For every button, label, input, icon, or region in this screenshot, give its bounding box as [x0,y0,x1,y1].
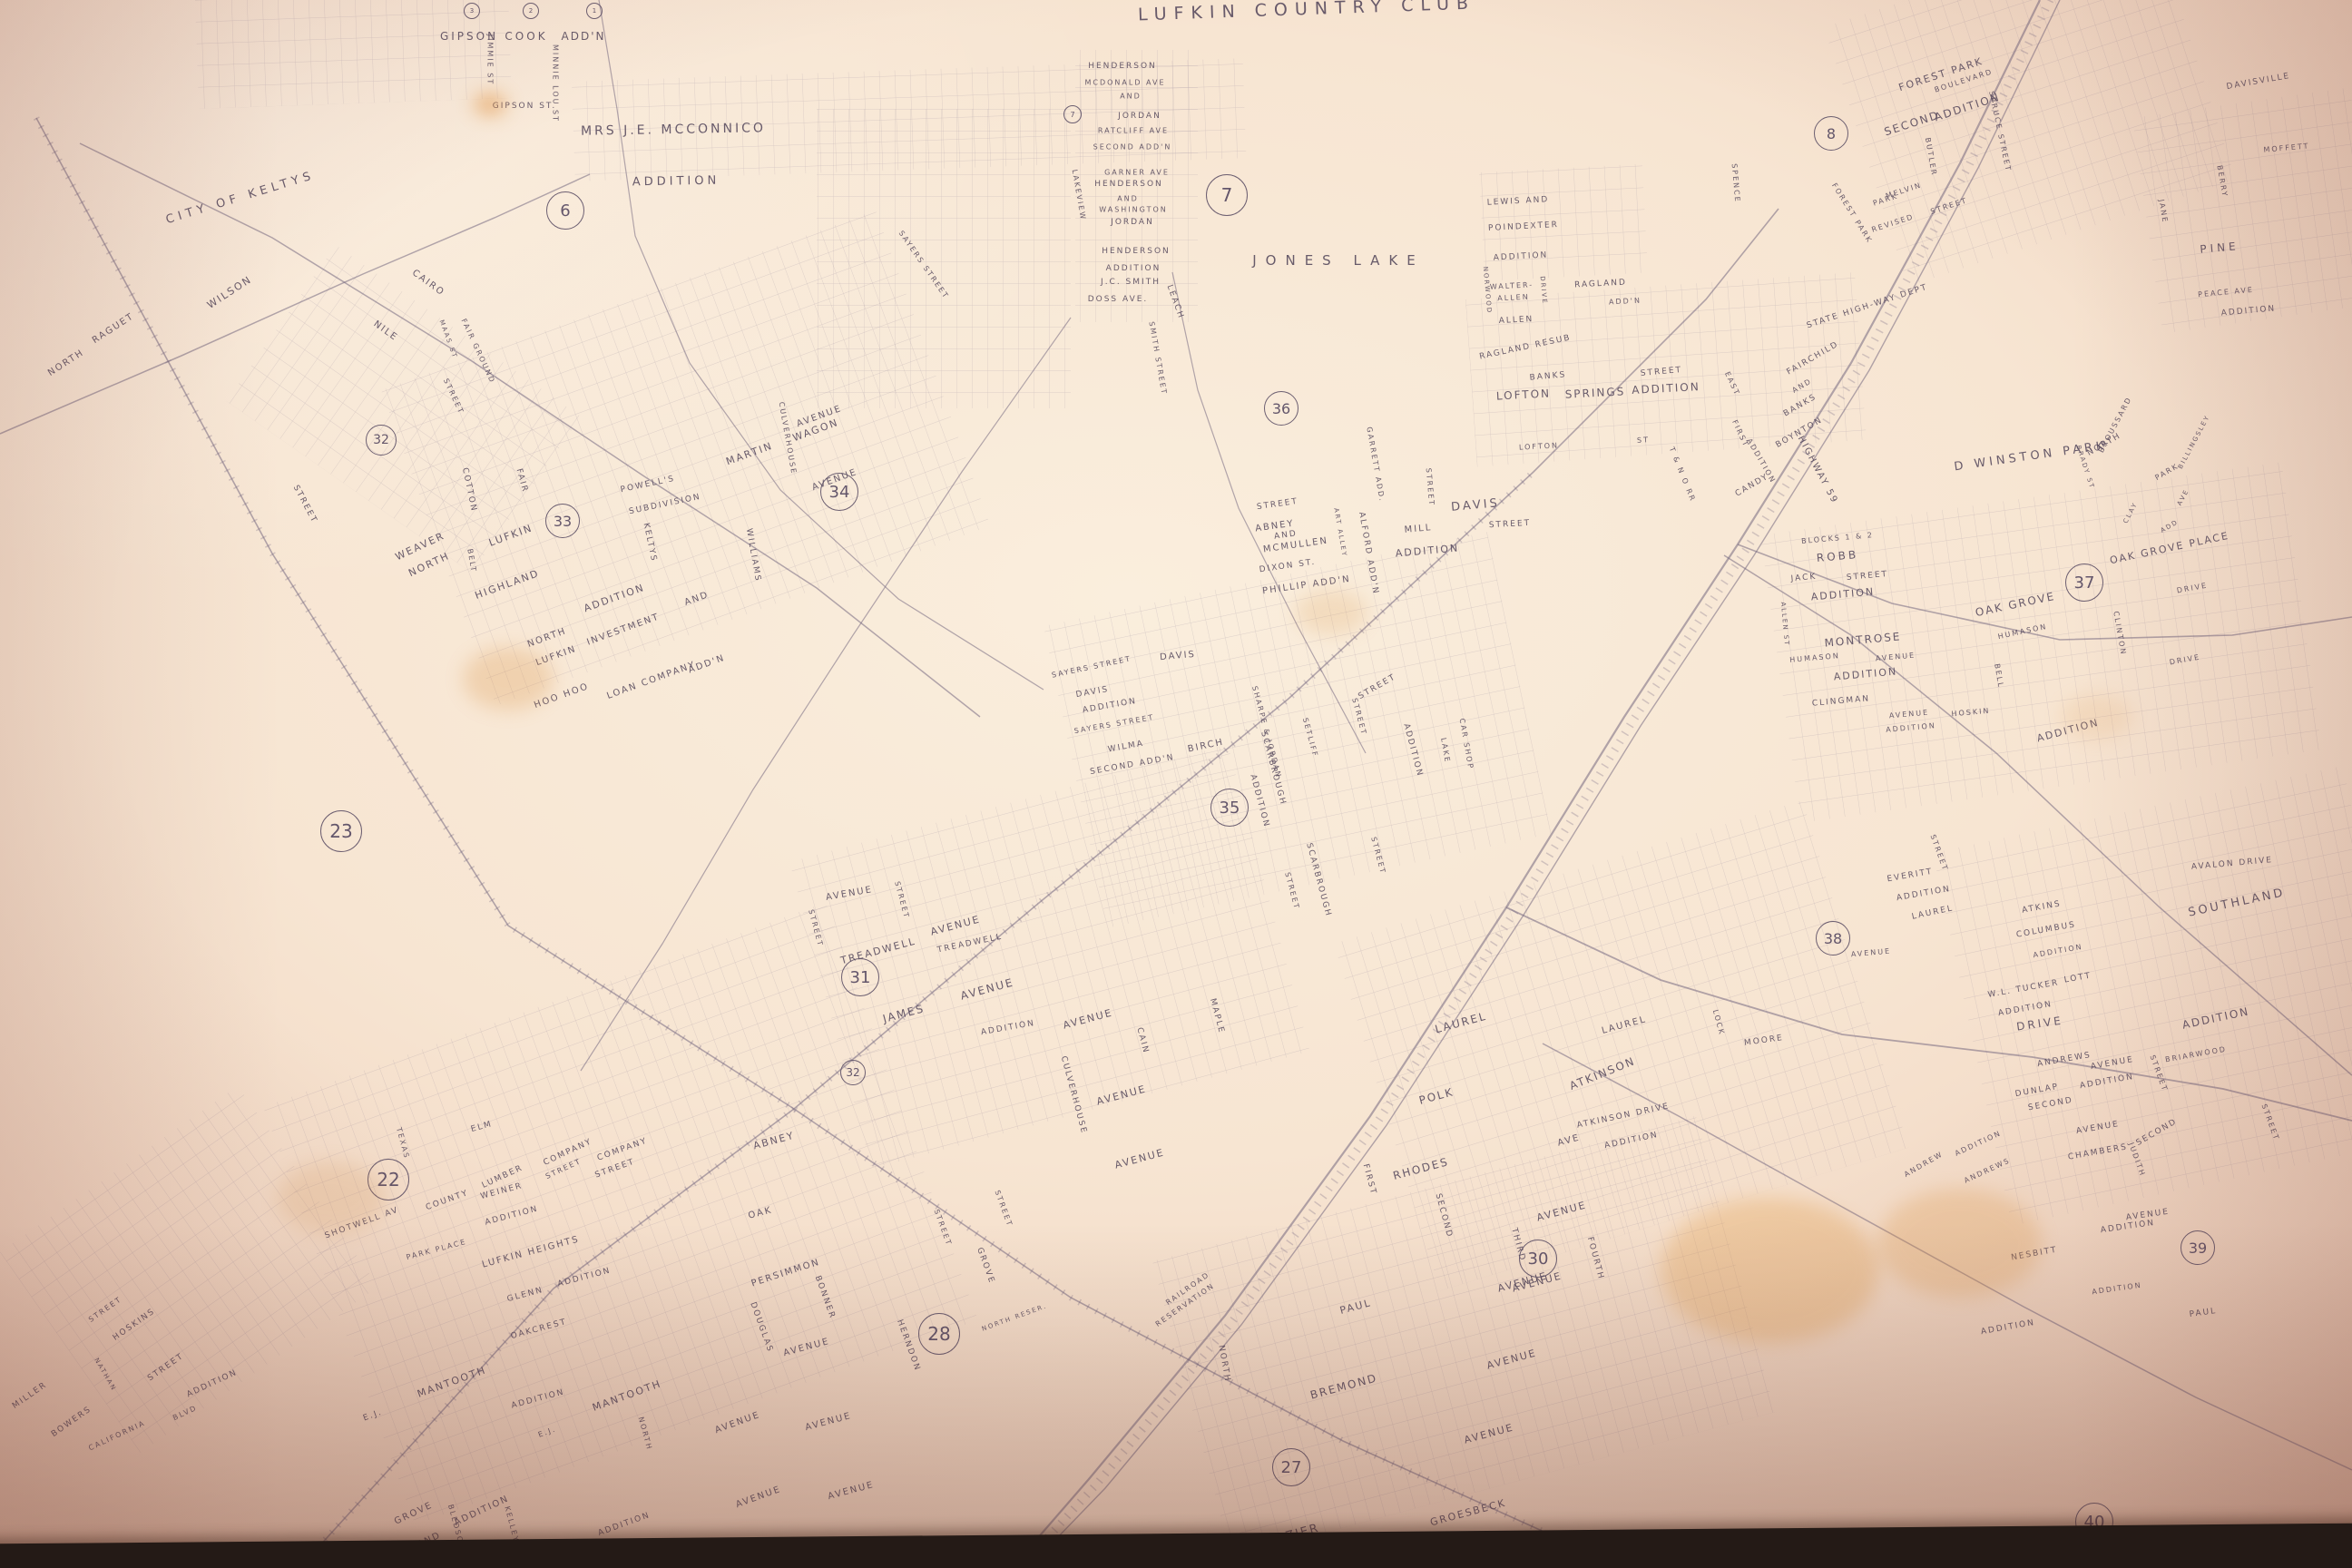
map-label: ADDITION [1106,264,1161,273]
map-label: RAGLAND [1574,278,1627,289]
map-label: AND [1791,377,1814,395]
map-label: MANTOOTH [591,1377,663,1414]
map-label: AVENUE [1850,947,1891,959]
map-label: MCMULLEN [1262,536,1328,555]
map-label: HERNDON [895,1318,922,1373]
map-label: JORDAN [1118,112,1161,121]
map-label: BOWERS [50,1405,93,1439]
district-number: 28 [918,1313,960,1355]
map-label: JANE [2157,199,2170,224]
map-label: HUMASON [1997,622,2048,641]
map-label: SAYERS STREET [1051,654,1132,679]
map-label: DAVIS [1075,685,1110,700]
map-label: LAUREL [1434,1010,1488,1036]
map-label: FAIR GROUND [459,318,496,385]
map-label: ADD'N [1609,297,1641,307]
map-label: SECOND [1434,1192,1455,1239]
district-number: 31 [841,958,879,996]
map-label: ADD [2160,518,2180,534]
map-label: AVENUE [782,1337,831,1358]
map-label: ANDREW [1903,1150,1945,1179]
map-label: RHODES [1392,1155,1451,1182]
map-label: PERSIMMON [750,1258,822,1289]
map-label: SMITH STREET [1147,321,1168,397]
map-label: ADDITION [1401,722,1424,778]
map-label: CAIRO [410,268,446,298]
map-label: PARK [2153,462,2180,482]
map-label: FAIRCHILD [1786,340,1841,377]
map-label: RATCLIFF AVE [1098,127,1169,135]
map-label: GROVE [975,1247,996,1286]
map-label: JACK [1790,573,1817,583]
map-label: ADDITION [2079,1073,2134,1091]
map-label: STREET [1929,196,1968,216]
map-label: J.C. SMITH [1101,278,1161,287]
plat-map-photo: LUFKIN COUNTRY CLUBGIPSONCOOKADD'NJIMMIE… [0,0,2352,1568]
map-label: DOSS AVE. [1088,295,1149,304]
map-label: GLENN [506,1286,544,1304]
map-label: HUMASON [1789,652,1840,664]
map-label: AND [1117,195,1139,203]
map-label: DRIVE [2169,653,2201,667]
map-label: ART ALLEY [1332,507,1347,557]
map-label: KELTYS [642,522,659,563]
paper-stain [2060,694,2132,740]
map-label: ATKINSON DRIVE [1576,1102,1671,1130]
district-number: 7 [1206,174,1248,216]
map-label: STATE HIGH-WAY DEPT [1806,283,1929,331]
map-label: MONTROSE [1824,630,1902,649]
map-label: ADDITION [556,1266,612,1289]
map-label: ROBB [1816,548,1858,564]
map-label: ADDITION [1954,1129,2003,1158]
map-label: WASHINGTON [1099,206,1167,214]
map-label: ADDITION [1082,697,1137,715]
map-label: SPRINGS [1564,385,1625,400]
map-label: CULVERHOUSE [1059,1055,1089,1135]
map-label: CHAMBERS [2067,1142,2129,1161]
map-label: PARK PLACE [406,1238,468,1261]
map-label: PAUL [1338,1297,1373,1317]
map-label: JONES LAKE [1252,252,1425,269]
map-label: ADDITION [1248,773,1270,828]
map-label: DRIVE [1539,276,1549,305]
map-label: AVENUE [804,1411,853,1433]
map-label: ADDITION [632,174,720,190]
map-label: CLINGMAN [1812,694,1871,709]
map-label: ABNEY [752,1130,797,1152]
map-label: AVALON DRIVE [2191,856,2274,872]
map-label: ADDITION [484,1204,539,1227]
map-label: AVENUE [1113,1146,1166,1171]
map-label: ALLEN ST [1779,602,1790,647]
map-label: NORTH [1216,1345,1231,1384]
map-label: STREET [1369,836,1387,875]
paper-stain [1878,1189,2042,1298]
map-label: SUBDIVISION [628,493,701,517]
map-label: MARTIN [724,440,774,468]
map-label: ADDITION [1493,250,1548,262]
map-label: AVENUE [825,885,874,903]
map-label: ADDITION [1980,1318,2035,1337]
map-label: TREADWELL [936,933,1004,955]
map-label: STREET [1425,467,1436,506]
map-label: STREET [87,1295,123,1324]
map-label: MANTOOTH [416,1364,488,1400]
map-label: MCDONALD AVE [1084,79,1165,87]
map-label: HENDERSON [1094,180,1163,189]
map-label: DAVIS [1451,496,1501,514]
map-label: NORTH [526,626,568,650]
map-label: AVE [1556,1132,1581,1148]
map-label: PEACE AVE [2198,286,2254,299]
map-labels-layer: LUFKIN COUNTRY CLUBGIPSONCOOKADD'NJIMMIE… [0,0,2352,1568]
map-label: FOURTH [1585,1236,1605,1281]
map-label: SPENCE [1730,163,1742,203]
paper-stain [277,1161,386,1234]
map-label: MRS J.E. MCCONNICO [581,121,766,139]
map-label: RAGUET [91,311,136,346]
map-label: POLK [1417,1085,1455,1107]
map-label: GARNER AVE [1104,169,1170,177]
map-label: STREET [807,908,825,947]
map-label: BREMOND [1308,1371,1378,1401]
map-label: ADDITION [1896,885,1951,903]
map-label: LUFKIN HEIGHTS [481,1234,581,1269]
map-label: LUFKIN COUNTRY CLUB [1138,0,1476,24]
district-number: 8 [1814,116,1848,151]
map-label: KELLEY [503,1505,520,1543]
map-label: STREET [893,880,911,919]
map-label: LOFTON [1496,387,1552,402]
map-label: MAAS ST [438,318,459,359]
map-label: SECOND ADD'N [1093,143,1172,152]
map-label: ADDITION [2220,304,2276,318]
map-label: BERRY [2215,164,2229,198]
district-number: 6 [546,191,584,230]
map-label: WALTER- [1490,280,1534,291]
paper-stain [474,93,506,115]
map-label: LOAN COMPANY [605,660,697,701]
paper-stain [1295,590,1367,635]
map-label: AVENUE [713,1410,761,1436]
map-label: ADDITION [1886,721,1936,734]
map-label: NATHAN [93,1357,117,1393]
map-label: ADDITION [185,1368,239,1400]
map-label: REVISED [1870,212,1915,234]
map-label: LAUREL [1911,904,1955,922]
map-label: CAIN [1134,1026,1150,1054]
map-label: GROESBECK [1429,1497,1508,1529]
map-label: ALFORD ADD'N [1357,511,1380,595]
map-label: RAGLAND RESUB [1478,333,1572,361]
map-label: PAUL [2189,1307,2218,1319]
map-label: OAK GROVE [1975,590,2057,619]
map-label: AVENUE [1875,652,1916,663]
map-label: PINE [2200,240,2239,256]
district-number: 39 [2180,1230,2215,1265]
map-label: STREET [146,1352,186,1384]
district-number: 7 [1063,105,1082,123]
district-number: 3 [464,3,480,19]
map-label: DAVIS [1160,650,1197,662]
map-label: ADD'N [562,30,606,43]
map-label: JORDAN [1111,218,1154,227]
map-label: TEXAS [395,1126,411,1160]
map-label: BUTLER [1924,137,1938,177]
map-label: FAIR [514,467,530,494]
map-label: JUDITH [2127,1142,2147,1178]
map-label: SECOND ADD'N [1090,753,1176,777]
map-label: AVENUE [959,975,1015,1002]
map-label: DUNLAP [2014,1083,2060,1099]
district-number: 38 [1816,921,1850,955]
map-label: W.L. TUCKER [1987,978,2060,1000]
map-label: LUFKIN [487,522,534,549]
map-label: AVENUE [734,1485,782,1510]
map-label: ALLEN [1498,315,1534,326]
map-label: STREET [932,1208,953,1247]
map-label: SAYERS STREET [1073,713,1155,735]
map-label: AVE [2176,487,2190,506]
map-label: EAST [1723,370,1741,397]
map-label: STREET [1350,697,1368,736]
map-label: BELL [1993,663,2005,690]
map-label: COTTON [460,466,478,513]
map-label: ELM [470,1120,494,1134]
map-label: NORTH [637,1416,654,1451]
map-label: BILLINGSLEY [2177,414,2211,470]
map-label: DRIVE [2176,582,2209,595]
district-number: 36 [1264,391,1298,426]
map-label: BONNER [813,1275,838,1321]
map-label: SAYERS STREET [897,230,951,301]
map-label: DOUGLAS [748,1301,774,1355]
map-label: AVENUE [1062,1006,1114,1031]
map-label: AVENUE [2075,1120,2120,1136]
map-label: AVENUE [1888,709,1929,720]
map-label: ATKINSON [1568,1054,1638,1093]
map-label: DRIVE [2015,1014,2063,1033]
map-label: ADDITION [2092,1281,2142,1297]
map-label: GROVE [393,1500,435,1526]
map-label: CANDY [1734,472,1771,498]
map-label: MINNIE LOU ST [552,44,560,122]
map-label: INVESTMENT [585,612,661,647]
map-label: CAR SHOP [1458,718,1475,770]
map-label: E.J. [362,1408,384,1424]
map-label: LAKEVIEW [1071,169,1088,221]
map-label: BANKS [1529,370,1566,383]
map-label: STREET [1357,672,1397,701]
map-label: ADDITION [510,1387,565,1410]
map-label: MAPLE [1208,997,1226,1034]
map-label: AVENUE [1463,1421,1515,1445]
map-label: AVENUE [929,913,982,937]
map-label: ADDITION [1395,542,1459,559]
district-number: 33 [545,504,580,538]
map-label: BRIARWOOD [2164,1045,2227,1064]
map-label: DIXON ST. [1259,558,1317,575]
map-label: JAMES [881,1002,926,1025]
map-label: ADDITION [453,1494,511,1528]
map-label: ADDITION [2181,1004,2251,1031]
map-label: E.J. [537,1425,557,1438]
map-label: STREET [291,484,319,525]
map-label: BELT [465,548,478,573]
map-label: STREET [1846,570,1888,583]
map-label: ANDREWS [1963,1156,2012,1184]
map-label: STREET [1256,497,1298,512]
district-number: 32 [366,425,397,456]
map-label: COUNTY [425,1189,470,1212]
map-label: NILE [371,319,399,344]
map-label: MILLER [11,1380,49,1411]
map-label: WILLIAMS [744,528,762,583]
map-label: ANDREWS [2036,1051,2092,1069]
map-label: AVENUE [1485,1347,1538,1371]
map-label: STREET [1283,871,1301,910]
map-label: SCARBROUGH [1304,842,1332,918]
map-label: POWELL'S [620,475,676,495]
paper-stain [463,647,554,710]
map-label: ALLEN [1497,293,1530,303]
map-label: ADDITION [597,1511,652,1538]
map-label: ADDITION [1833,665,1897,682]
map-label: HENDERSON [1088,62,1157,71]
district-number: 30 [1519,1240,1557,1278]
map-label: BROUSSARD [2097,396,2133,455]
map-label: SECOND [2027,1096,2073,1113]
map-label: STREET [1489,519,1532,530]
map-label: LEACH [1165,284,1186,321]
district-number: 37 [2065,563,2103,602]
district-number: 34 [820,473,858,511]
map-label: OAK GROVE PLACE [2109,530,2230,567]
map-label: BIRCH [1187,737,1225,754]
map-label: CLAY [2122,501,2139,524]
map-label: AND [1120,93,1142,101]
paper-stain [1661,1198,1878,1343]
map-label: ADDITION [1810,585,1875,603]
map-label: AVENUE [2090,1055,2134,1072]
district-number: 35 [1210,789,1249,827]
map-label: BLOCKS 1 & 2 [1801,531,1874,545]
map-label: COMPANY [596,1136,649,1162]
map-label: MOFFETT [2263,142,2310,153]
map-label: FIRST [1361,1163,1378,1197]
map-label: LAUREL [1601,1014,1648,1036]
map-label: OAK [747,1205,773,1221]
map-label: NORTH [46,348,86,378]
map-label: CLINTON [2112,611,2127,656]
map-label: ADDITION [1603,1131,1659,1151]
district-number: 23 [320,810,362,852]
map-label: HENDERSON [1102,247,1171,256]
map-label: AND [683,590,710,608]
map-label: HIGHWAY 59 [1796,435,1840,506]
map-label: CITY OF KELTYS [164,169,317,227]
map-label: LAKE [1439,737,1452,764]
map-label: BANKS [1782,392,1818,418]
map-label: COLUMBUS [2015,920,2076,939]
district-number: 1 [586,3,603,19]
map-label: ST [1637,436,1650,445]
map-label: STREET [442,377,465,416]
map-label: ADDITION [980,1019,1035,1037]
map-label: MOORE [1744,1034,1785,1048]
map-label: EVERITT [1886,867,1934,885]
map-label: CALIFORNIA [87,1419,147,1453]
map-label: JIMMIE ST [486,34,495,85]
map-label: COOK [505,30,547,43]
map-label: WILMA [1107,740,1145,755]
map-label: ATKINS [2021,899,2062,915]
map-label: STREET [993,1189,1014,1228]
map-label: FOREST PARK [1830,181,1874,245]
map-label: LOFTON [1519,441,1560,451]
map-label: POINDEXTER [1488,220,1559,233]
district-number: 2 [523,3,539,19]
map-label: SETLIFF [1301,717,1319,759]
map-label: STREET [2259,1102,2280,1142]
map-label: LOCK [1711,1009,1726,1037]
district-number: 27 [1272,1448,1310,1486]
map-label: SECOND [2135,1117,2180,1148]
map-label: ADDITION [1632,380,1700,397]
map-label: AVENUE [827,1480,876,1502]
district-number: 32 [840,1060,866,1085]
map-label: BLVD [171,1404,199,1422]
map-label: HOSKINS [112,1307,157,1342]
map-label: NORTH RESER. [981,1302,1048,1332]
map-label: AVENUE [1095,1083,1148,1107]
map-label: MILL [1404,523,1433,535]
map-label: WILSON [205,273,254,310]
map-label: T & N O RR [1668,446,1698,503]
map-label: HOSKIN [1951,707,1991,719]
map-label: STREET [1640,366,1682,378]
map-label: OAKCREST [510,1318,568,1341]
map-label: LOTT [2063,971,2092,985]
map-label: ADDITION [2033,943,2083,960]
map-label: DAVISVILLE [2226,72,2291,92]
map-label: ADDITION [583,582,647,614]
map-label: SOUTHLAND [2187,886,2287,919]
map-label: GARRETT ADD. [1365,426,1387,504]
map-label: HIGHLAND [474,567,542,602]
map-label: LEWIS AND [1486,195,1549,208]
map-label: AVENUE [1535,1199,1588,1223]
